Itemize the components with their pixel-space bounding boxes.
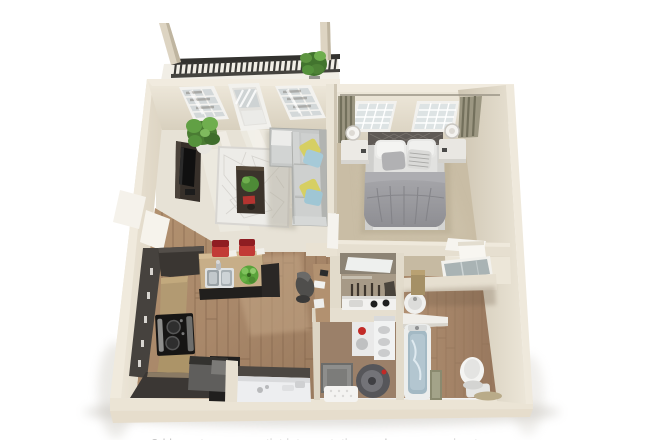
svg-text:3d layouts are an artist inter: 3d layouts are an artist interpretation …	[151, 436, 485, 440]
